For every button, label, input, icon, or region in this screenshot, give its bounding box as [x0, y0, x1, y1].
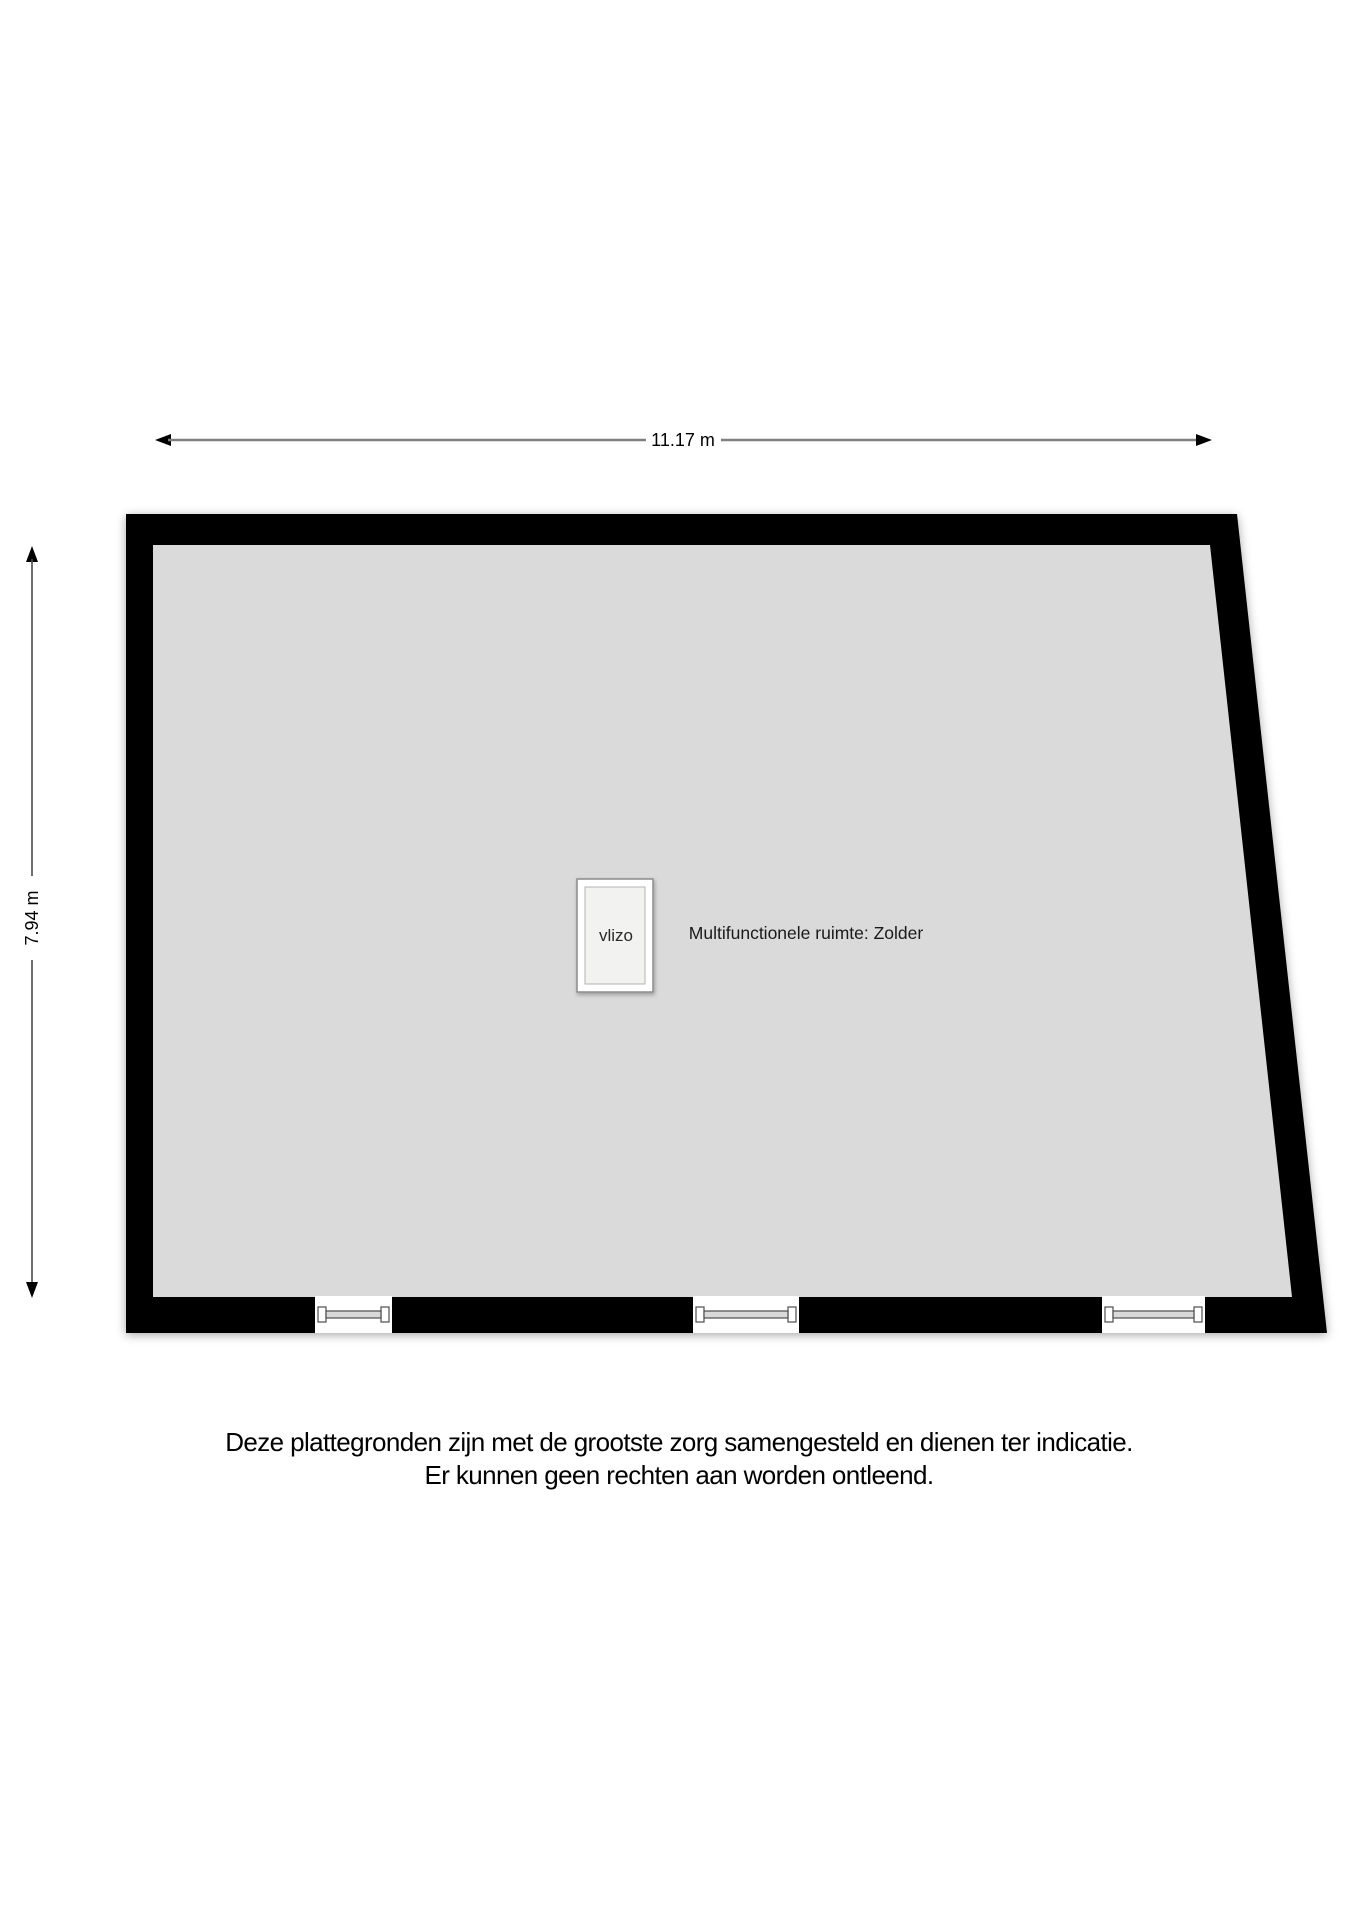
window-glass: [1113, 1311, 1194, 1318]
floorplan-drawing: 11.17 m 7.94 m: [0, 0, 1358, 1920]
room-name-label: Multifunctionele ruimte: Zolder: [689, 923, 924, 943]
window-1: [315, 1296, 392, 1333]
disclaimer: Deze plattegronden zijn met de grootste …: [0, 1426, 1358, 1492]
window-glass: [704, 1311, 788, 1318]
arrowhead-right-icon: [1196, 434, 1212, 446]
window-post-left: [318, 1307, 326, 1322]
dimension-width-label: 11.17 m: [651, 430, 715, 450]
room-floor: [153, 545, 1292, 1297]
window-post-left: [1105, 1307, 1113, 1322]
dimension-height-label: 7.94 m: [22, 890, 42, 945]
window-post-left: [696, 1307, 704, 1322]
dimension-height: 7.94 m: [22, 546, 42, 1298]
window-3: [1102, 1296, 1205, 1333]
window-post-right: [381, 1307, 389, 1322]
arrowhead-down-icon: [26, 1282, 38, 1298]
vlizo-hatch-label: vlizo: [599, 926, 633, 945]
window-post-right: [1194, 1307, 1202, 1322]
floorplan-page: 11.17 m 7.94 m: [0, 0, 1358, 1920]
window-post-right: [788, 1307, 796, 1322]
disclaimer-line-1: Deze plattegronden zijn met de grootste …: [0, 1426, 1358, 1459]
vlizo-hatch: vlizo: [577, 879, 653, 992]
window-glass: [326, 1311, 381, 1318]
window-2: [693, 1296, 799, 1333]
disclaimer-line-2: Er kunnen geen rechten aan worden ontlee…: [0, 1459, 1358, 1492]
dimension-width: 11.17 m: [155, 430, 1212, 450]
